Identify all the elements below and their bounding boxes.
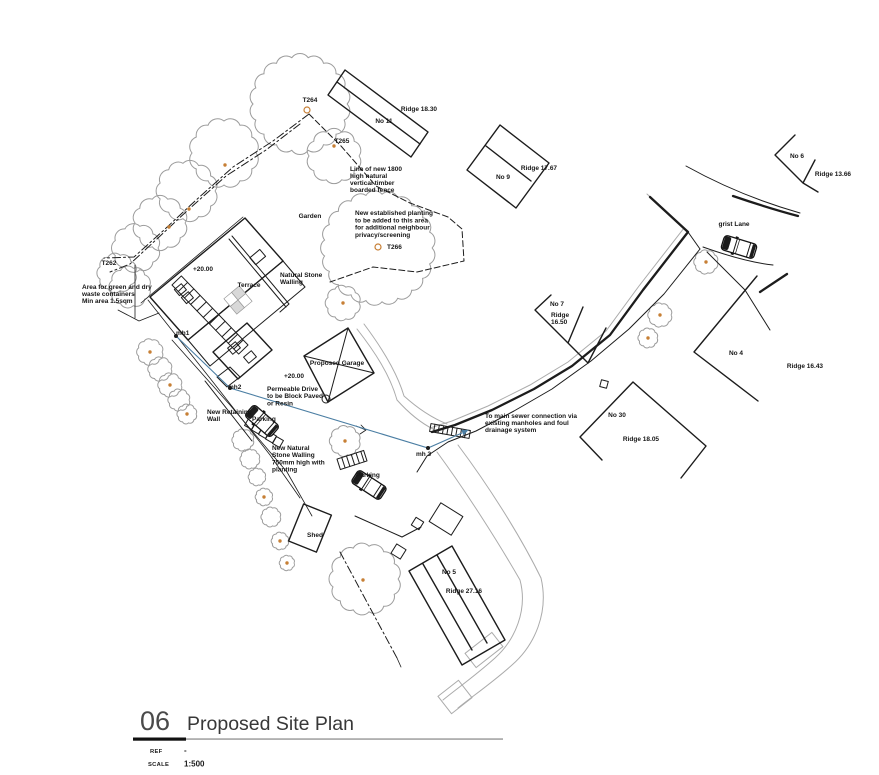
- tree-canopy: [148, 357, 172, 381]
- label-ridge-18-05: Ridge 18.05: [623, 436, 660, 443]
- label-no-5: No 5: [442, 569, 456, 576]
- scale-value: 1:500: [184, 760, 205, 769]
- parking-hatch-strip: [337, 450, 367, 469]
- label-parking-2: Parking: [356, 472, 380, 479]
- title-block: 06 Proposed Site Plan REF - SCALE 1:500: [133, 706, 503, 769]
- label-ridge-16-43: Ridge 16.43: [787, 363, 824, 370]
- label-waste-note: Area for green and drywaste containersMi…: [81, 284, 152, 305]
- tree-trunk-dot: [704, 260, 707, 263]
- tree-canopy: [156, 160, 217, 221]
- tree-trunk-dot: [168, 383, 171, 386]
- label-proposed-garage: Proposed Garage: [310, 360, 365, 367]
- tree-survey-ring: [304, 107, 310, 113]
- ref-value: -: [184, 746, 187, 755]
- tree-trunk-dot: [646, 336, 649, 339]
- tree-trunk-dot: [341, 301, 344, 304]
- label-garden: Garden: [299, 213, 322, 220]
- label-parking-1: Parking: [252, 416, 276, 423]
- tree-survey-ring: [375, 244, 381, 250]
- label-mh3: mh 3: [416, 451, 432, 458]
- label-stone-wall-note: New NaturalStone Walling750mm high withp…: [272, 445, 325, 474]
- main-house: [141, 217, 305, 387]
- tree-canopy: [232, 429, 254, 451]
- building-no-4: [694, 274, 787, 401]
- tree-canopy: [261, 507, 281, 527]
- label-no-11: No 11: [375, 118, 393, 125]
- drawing-sheet: T264No 11Ridge 18.30T265Line of new 1800…: [0, 0, 879, 775]
- label-t265: T265: [335, 138, 350, 145]
- car-icon: [720, 233, 758, 261]
- label-fence-note: Line of new 1800high naturalvertical tim…: [350, 166, 402, 194]
- walls-group: [245, 419, 424, 560]
- label-stone-walling-note: Natural StoneWalling: [280, 272, 323, 286]
- tree-trunk-dot: [167, 225, 170, 228]
- tree-canopy: [248, 468, 265, 486]
- label-mh1: mh1: [176, 330, 190, 337]
- scale-label: SCALE: [148, 762, 169, 768]
- title-underline-dark: [133, 738, 186, 741]
- road-manhole: [600, 380, 609, 389]
- building-no-6: [775, 135, 818, 192]
- label-terrace: Terrace: [237, 282, 260, 289]
- building-no-30: [580, 382, 706, 478]
- tree-canopy: [321, 191, 435, 305]
- building-shed: [289, 504, 332, 552]
- tree-canopies: [97, 53, 718, 614]
- label-no-7: No 7: [550, 301, 564, 308]
- drive-edges: [148, 300, 312, 516]
- track-edge-west: [437, 452, 522, 700]
- tree-trunk-dot: [187, 207, 190, 210]
- label-t266: T266: [387, 244, 402, 251]
- label-level-20-drive: +20.00: [284, 373, 304, 380]
- label-no-6: No 6: [790, 153, 804, 160]
- tree-trunk-dot: [285, 561, 288, 564]
- tree-trunk-dot: [361, 578, 364, 581]
- label-ridge-13-66: Ridge 13.66: [815, 171, 852, 178]
- tree-trunk-dot: [148, 350, 151, 353]
- ref-label: REF: [150, 749, 163, 755]
- label-ridge-16-50: Ridge16.50: [551, 312, 569, 326]
- tree-trunk-dot: [278, 539, 281, 542]
- sheet-title: Proposed Site Plan: [187, 713, 354, 735]
- site-plan-canvas: T264No 11Ridge 18.30T265Line of new 1800…: [0, 0, 879, 775]
- sheet-number: 06: [140, 706, 170, 736]
- grist-lane-edge: [686, 166, 800, 213]
- label-permeable-note: Permeable Driveto be Block Pavedor Resin: [267, 386, 323, 407]
- label-level-20-house: +20.00: [193, 266, 213, 273]
- boundary-lines: [104, 114, 401, 667]
- tree-canopy: [240, 449, 260, 469]
- tree-canopy: [190, 119, 258, 187]
- label-ridge-17-67: Ridge 17.67: [521, 165, 558, 172]
- tree-trunk-dot: [262, 495, 265, 498]
- label-no-30: No 30: [608, 412, 626, 419]
- label-ridge-18-30: Ridge 18.30: [401, 106, 438, 113]
- label-retaining-note: New RetainingWall: [207, 409, 252, 423]
- tree-canopy: [329, 543, 400, 615]
- label-shed: Shed: [307, 532, 323, 539]
- building-no-5: [409, 503, 505, 665]
- building-no-7: [535, 295, 606, 363]
- entrance-wall: [355, 516, 402, 537]
- proposed-garage-outline: [304, 324, 447, 429]
- track-edge-east: [458, 445, 543, 708]
- label-grist-lane: grist Lane: [718, 221, 749, 228]
- label-no-9: No 9: [496, 174, 510, 181]
- label-mh2: mh2: [228, 384, 242, 391]
- label-no-4: No 4: [729, 350, 743, 357]
- label-planting-note: New established plantingto be added to t…: [355, 210, 433, 239]
- tree-trunk-dot: [343, 439, 346, 442]
- tree-trunk-dot: [185, 412, 188, 415]
- manhole-mh3: [426, 446, 430, 450]
- neighbour-buildings: [289, 70, 818, 665]
- label-sewer-note: To main sewer connection viaexisting man…: [485, 413, 577, 434]
- tree-trunk-dot: [223, 163, 226, 166]
- label-ridge-27-16: Ridge 27.16: [446, 588, 483, 595]
- title-underline-gray: [186, 738, 503, 739]
- label-t264: T264: [303, 97, 318, 104]
- label-t262: T262: [102, 260, 117, 267]
- tree-trunk-dot: [658, 313, 661, 316]
